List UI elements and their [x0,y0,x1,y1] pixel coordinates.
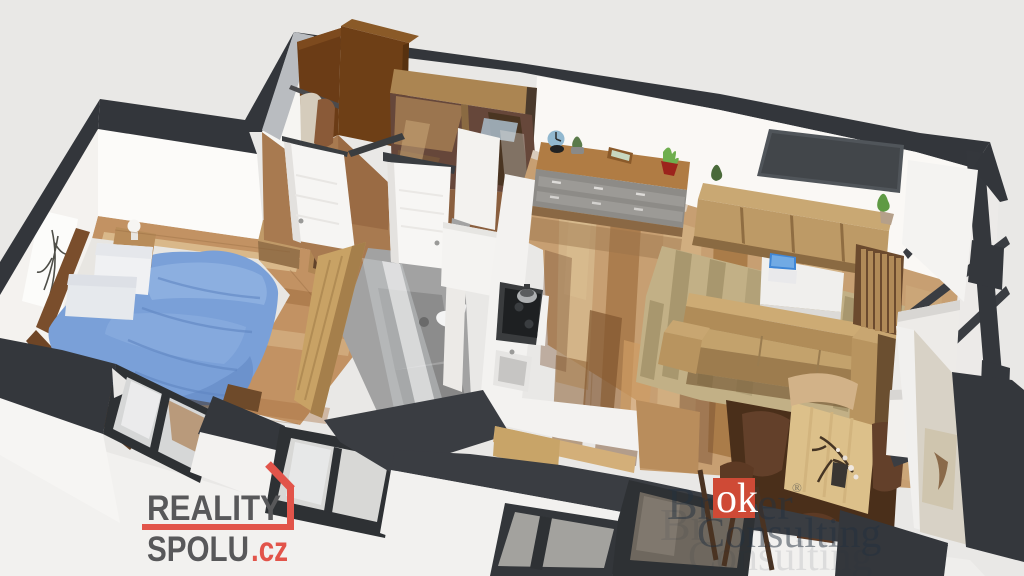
svg-text:SPOLU: SPOLU [147,530,249,569]
svg-text:Consulting: Consulting [697,511,881,557]
svg-text:®: ® [792,480,802,495]
svg-text:REALITY: REALITY [147,489,281,528]
svg-text:.cz: .cz [251,530,288,569]
